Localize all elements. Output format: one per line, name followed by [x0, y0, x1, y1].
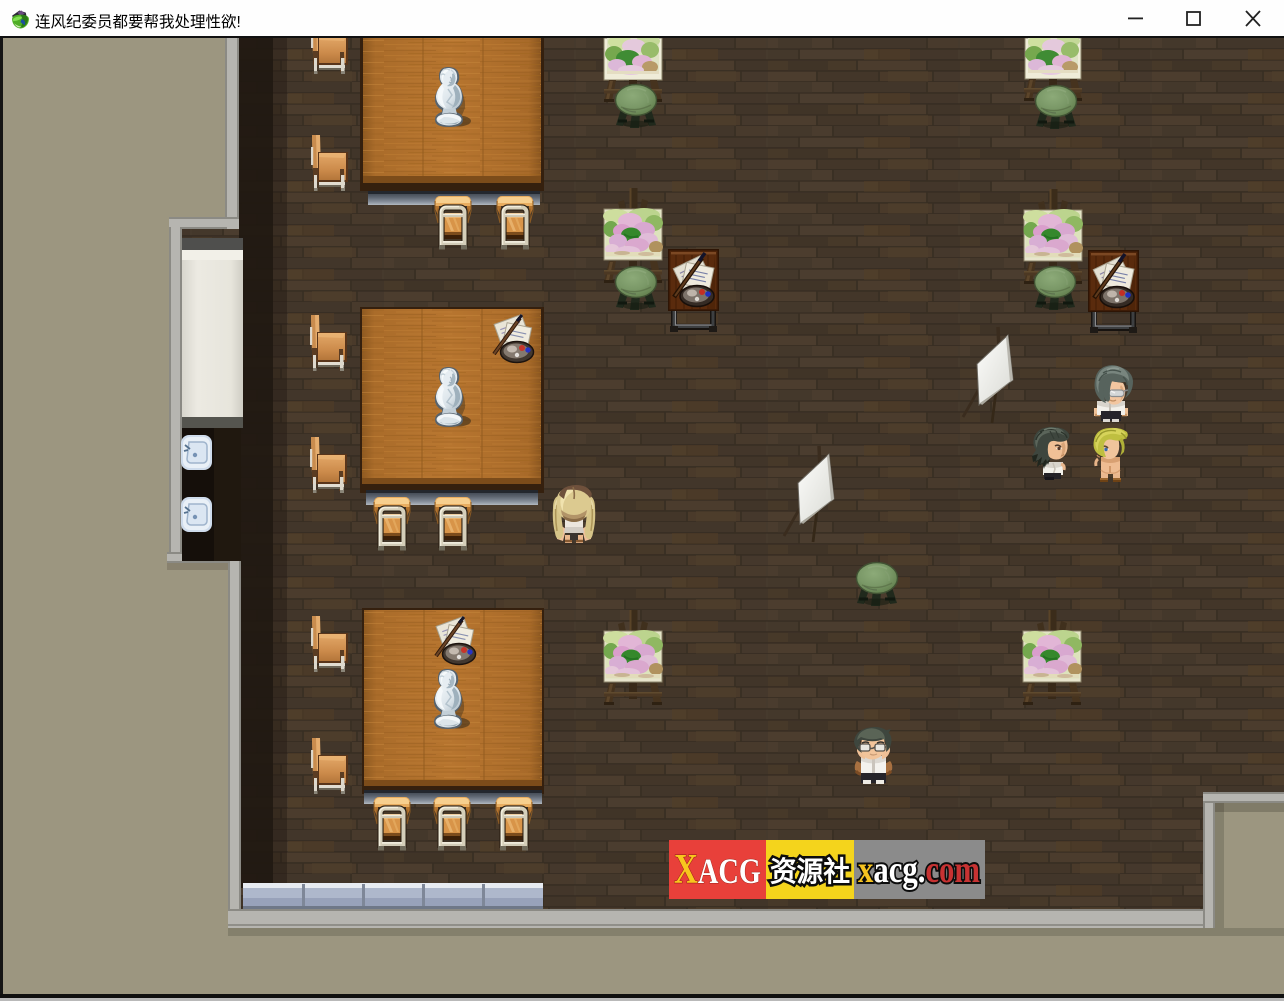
svg-text:xacg.com: xacg.com [858, 849, 980, 891]
svg-text:资源社: 资源社 [770, 856, 850, 887]
svg-text:XACG: XACG [674, 847, 761, 893]
